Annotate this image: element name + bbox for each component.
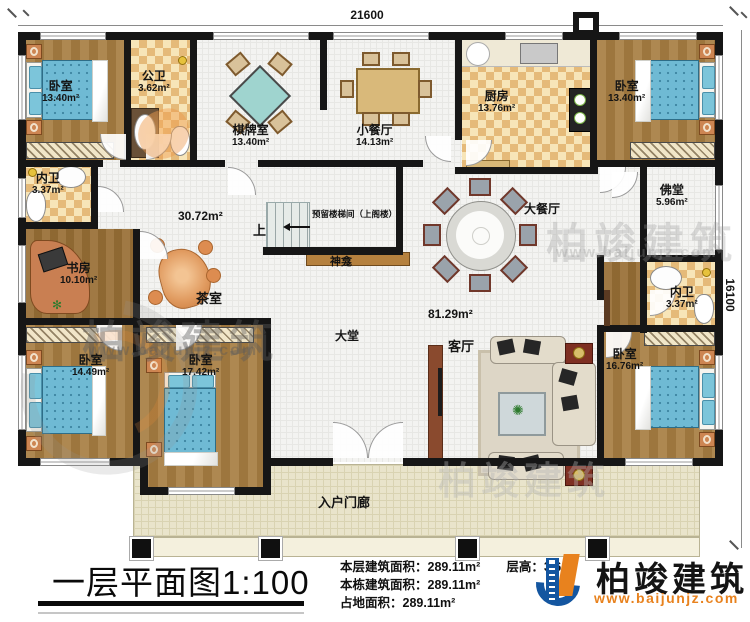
dimension-line-right [741, 30, 742, 548]
stairs-arrowhead [283, 223, 290, 231]
wall [91, 160, 98, 229]
room-label-chess-room: 棋牌室 13.40m² [232, 124, 269, 149]
wall [258, 160, 423, 167]
wall [640, 255, 647, 333]
nightstand [699, 44, 715, 59]
burner-icon [574, 94, 586, 106]
window [168, 487, 235, 495]
wall [640, 255, 723, 262]
dimension-top-value: 21600 [332, 8, 402, 22]
light-icon [178, 56, 187, 65]
brand-logo-icon [534, 550, 592, 612]
room-label-kitchen: 厨房 13.76m² [478, 90, 515, 115]
chair [362, 52, 380, 66]
room-label-small-dining: 小餐厅 14.13m² [356, 124, 393, 149]
double-sink-icon [520, 43, 558, 64]
room-area: 16.76m² [606, 361, 643, 372]
window [18, 178, 26, 218]
nightstand [699, 432, 715, 447]
floor-area-label: 本层建筑面积： [340, 560, 428, 574]
room-area: 14.49m² [72, 367, 109, 378]
dimension-tick [729, 540, 739, 550]
wall [320, 40, 327, 110]
door-leaf [604, 290, 610, 326]
room-name: 卧室 [182, 354, 219, 367]
room-name: 卧室 [42, 80, 79, 93]
dining-table-small [356, 68, 420, 114]
room-label-public-bath: 公卫 3.62m² [138, 70, 170, 95]
room-name: 卧室 [72, 354, 109, 367]
room-label-bedroom-tl: 卧室 13.40m² [42, 80, 79, 105]
tea-stool [148, 290, 163, 305]
room-label-inner-bath-right: 内卫 3.37m² [666, 286, 698, 311]
room-name: 公卫 [138, 70, 170, 83]
wall [597, 325, 723, 332]
logo-building-blue [546, 558, 559, 602]
room-area: 10.10m² [60, 275, 97, 286]
bed-sheet [635, 366, 651, 430]
room-area: 14.13m² [356, 137, 393, 148]
stairs-note-label: 预留楼梯间（上阁楼） [312, 208, 397, 220]
pillow [702, 400, 715, 425]
wall [396, 167, 403, 255]
room-area: 81.29m² [428, 308, 473, 321]
window [715, 55, 723, 120]
pillow [702, 92, 715, 115]
plant-icon: ✻ [52, 298, 62, 312]
room-label-bedroom-tr: 卧室 13.40m² [608, 80, 645, 105]
chair [469, 178, 491, 196]
tv-icon [438, 368, 442, 416]
wardrobe [644, 330, 715, 346]
site-area-value: 289.11m² [403, 596, 456, 610]
pillow [29, 66, 42, 89]
room-name: 客厅 [448, 340, 474, 355]
nightstand [699, 120, 715, 135]
room-label-living-room: 客厅 [448, 340, 474, 355]
wall [455, 40, 462, 140]
room-name: 卧室 [608, 80, 645, 93]
chair [418, 80, 432, 98]
room-name: 厨房 [478, 90, 515, 103]
wardrobe [26, 142, 114, 159]
room-name: 内卫 [666, 286, 698, 299]
chair [423, 224, 441, 246]
wall [597, 255, 604, 300]
stairs-up-label: 上 [253, 220, 266, 239]
wardrobe [630, 142, 715, 159]
tea-stool [198, 240, 213, 255]
window [333, 32, 429, 40]
chair [392, 52, 410, 66]
sofa-cushion [523, 339, 541, 356]
light-icon [702, 268, 711, 277]
dimension-tick [22, 9, 29, 16]
window [18, 245, 26, 303]
room-label-bedroom-bl: 卧室 14.49m² [72, 354, 109, 379]
room-label-inner-bath-left: 内卫 3.37m² [32, 172, 64, 197]
pillow [702, 66, 715, 89]
wall [403, 458, 605, 466]
chair [469, 274, 491, 292]
round-sink-icon [466, 42, 490, 66]
sofa-cushion [561, 395, 579, 412]
stairs-arrow [288, 226, 310, 228]
wall [590, 160, 723, 167]
dimension-right-value: 16100 [723, 265, 737, 325]
room-name: 大堂 [335, 330, 359, 343]
room-area: 17.42m² [182, 367, 219, 378]
chair [340, 80, 354, 98]
dimension-tick [740, 11, 747, 18]
window [213, 32, 309, 40]
nightstand [699, 350, 715, 365]
room-name: 大餐厅 [524, 203, 560, 216]
room-area: 13.76m² [478, 103, 515, 114]
pillow [29, 92, 42, 115]
room-label-study: 书房 10.10m² [60, 262, 97, 287]
window [18, 55, 26, 120]
pillow [702, 373, 715, 398]
brand-website: www.baijunjz.com [594, 590, 739, 606]
window [505, 32, 563, 40]
page-title: 一层平面图1:100 [52, 556, 310, 604]
room-area: 3.37m² [666, 299, 698, 310]
hall-area-label: 81.29m² [428, 308, 473, 321]
dimension-tick [7, 8, 17, 18]
room-area: 3.62m² [138, 83, 170, 94]
site-area-row: 占地面积：289.11m² [340, 592, 455, 611]
tea-stool [206, 268, 221, 283]
tea-room-area-label: 30.72m² [178, 210, 223, 223]
cabinet-knob [573, 347, 585, 359]
room-name: 小餐厅 [356, 124, 393, 137]
wall [455, 167, 598, 174]
room-label-bedroom-bm: 卧室 17.42m² [182, 354, 219, 379]
room-label-bedroom-br: 卧室 16.76m² [606, 348, 643, 373]
room-name: 佛堂 [656, 184, 688, 197]
wall [590, 40, 597, 167]
chimney [573, 12, 599, 36]
room-name: 入户门廊 [318, 496, 370, 511]
room-name: 茶室 [196, 292, 222, 307]
wall [120, 160, 225, 167]
building-area-row: 本栋建筑面积：289.11m² [340, 574, 480, 593]
building-area-value: 289.11m² [428, 578, 481, 592]
room-area: 5.96m² [656, 197, 688, 208]
window [625, 458, 693, 466]
wall [263, 458, 333, 466]
room-name: 卧室 [606, 348, 643, 361]
floor-area-value: 289.11m² [428, 560, 481, 574]
wall [640, 167, 647, 262]
room-area: 13.40m² [42, 93, 79, 104]
chair [392, 112, 410, 126]
room-name: 内卫 [32, 172, 64, 185]
title-underline [38, 601, 304, 606]
title-underline-thin [38, 612, 304, 614]
floor-plan-canvas: 21600 16100 [0, 0, 750, 622]
wall [18, 222, 98, 229]
window [715, 185, 723, 250]
room-name: 棋牌室 [232, 124, 269, 137]
cabinet-knob [573, 469, 585, 481]
wall [263, 318, 271, 495]
site-area-label: 占地面积： [340, 596, 403, 610]
wall [597, 325, 604, 466]
dimension-line-top [18, 25, 723, 26]
room-label-tea-room: 茶室 [196, 292, 222, 307]
nightstand [26, 120, 42, 135]
chair [519, 224, 537, 246]
plant-icon: ✺ [512, 402, 524, 419]
room-area: 3.37m² [32, 185, 64, 196]
room-label-buddha-hall: 佛堂 5.96m² [656, 184, 688, 209]
wall [190, 40, 197, 160]
window [40, 32, 106, 40]
window [619, 32, 697, 40]
room-label-hall: 大堂 [335, 330, 359, 343]
table-center [472, 227, 490, 245]
burner-icon [574, 112, 586, 124]
bed-sheet [164, 452, 218, 466]
room-area: 13.40m² [608, 93, 645, 104]
shrine-label: 神龛 [330, 253, 352, 269]
room-area: 30.72m² [178, 210, 223, 223]
room-label-porch: 入户门廊 [318, 496, 370, 511]
window [715, 355, 723, 430]
room-label-grand-dining: 大餐厅 [524, 203, 560, 216]
dimension-tick [729, 6, 739, 16]
room-name: 书房 [60, 262, 97, 275]
bed-sheet [92, 60, 108, 122]
room-area: 13.40m² [232, 137, 269, 148]
bed [647, 366, 699, 428]
building-area-label: 本栋建筑面积： [340, 578, 428, 592]
nightstand [26, 44, 42, 59]
bed [647, 60, 699, 120]
